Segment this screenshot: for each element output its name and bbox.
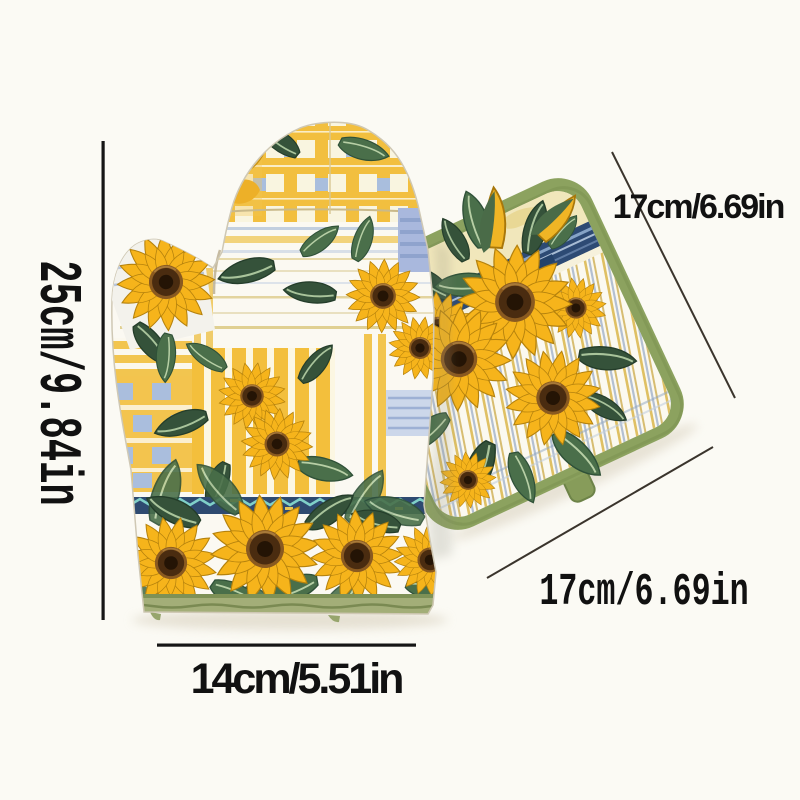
svg-text:25cm/9.84in: 25cm/9.84in (23, 260, 92, 505)
svg-text:17cm/6.69in: 17cm/6.69in (613, 188, 784, 226)
svg-text:17cm/6.69in: 17cm/6.69in (539, 567, 748, 618)
svg-text:14cm/5.51in: 14cm/5.51in (191, 655, 403, 703)
